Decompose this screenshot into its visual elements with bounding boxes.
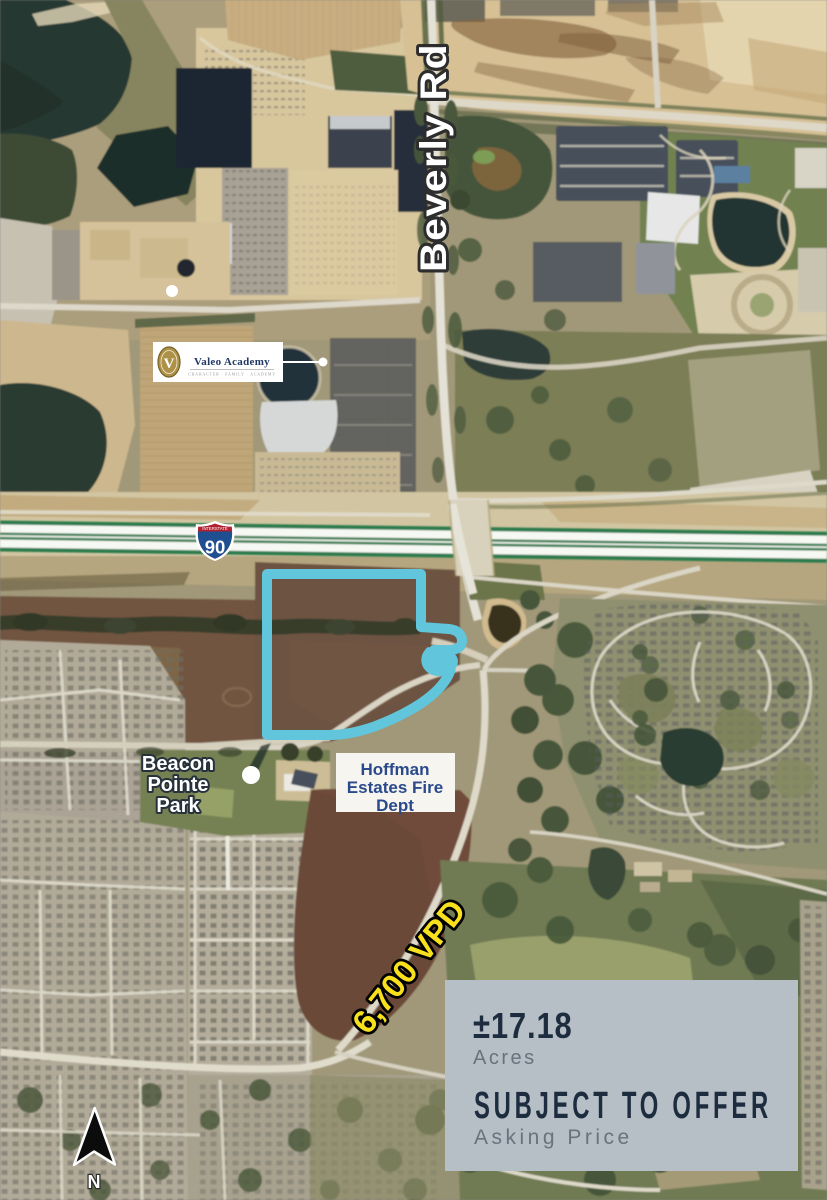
svg-text:Dept: Dept	[376, 796, 414, 815]
svg-text:CHARACTER · FAMILY · ACADEMY: CHARACTER · FAMILY · ACADEMY	[188, 372, 276, 377]
svg-text:Asking Price: Asking Price	[474, 1126, 633, 1149]
svg-text:V: V	[164, 356, 175, 372]
svg-text:Estates Fire: Estates Fire	[347, 778, 443, 797]
svg-text:Beacon: Beacon	[142, 753, 214, 775]
svg-text:±17.18: ±17.18	[473, 1007, 573, 1047]
svg-text:Hoffman: Hoffman	[361, 760, 430, 779]
svg-text:N: N	[88, 1172, 101, 1192]
svg-text:Valeo Academy: Valeo Academy	[194, 356, 270, 368]
svg-text:Acres: Acres	[473, 1047, 537, 1069]
svg-text:Pointe: Pointe	[147, 774, 208, 796]
svg-text:90: 90	[205, 537, 226, 558]
svg-text:Beverly Rd: Beverly Rd	[414, 43, 455, 272]
svg-text:INTERSTATE: INTERSTATE	[202, 526, 228, 531]
svg-text:Park: Park	[156, 795, 200, 817]
svg-text:SUBJECT TO OFFER: SUBJECT TO OFFER	[474, 1083, 772, 1126]
